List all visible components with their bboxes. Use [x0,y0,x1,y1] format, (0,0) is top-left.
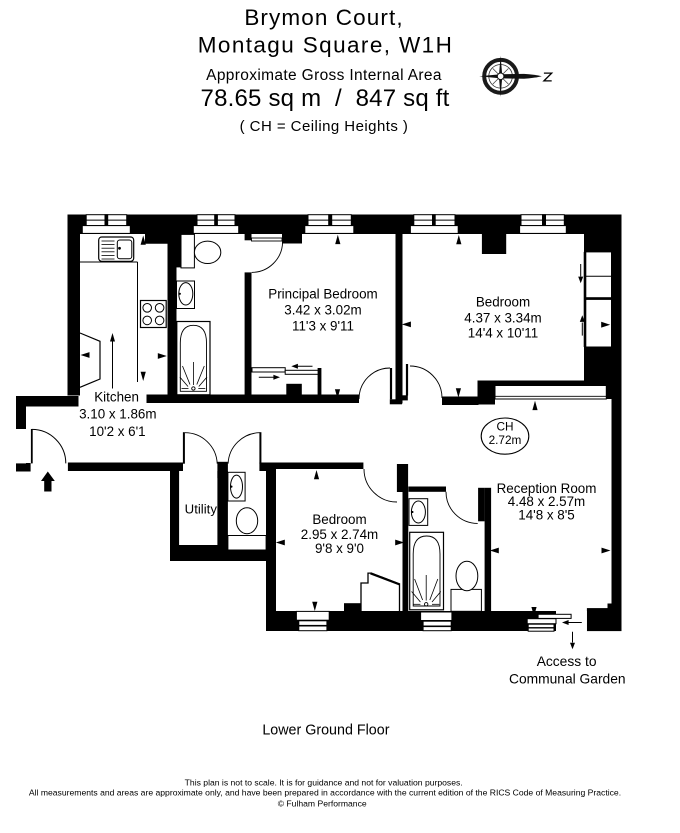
svg-text:CH: CH [496,420,513,434]
svg-text:Communal Garden: Communal Garden [509,671,626,686]
svg-text:14'8 x 8'5: 14'8 x 8'5 [518,508,575,523]
svg-text:This plan is not to scale. It: This plan is not to scale. It is for gui… [185,777,463,787]
svg-text:4.37 x 3.34m: 4.37 x 3.34m [464,311,541,326]
svg-text:10'2 x 6'1: 10'2 x 6'1 [89,424,146,439]
svg-text:( CH = Ceiling Heights ): ( CH = Ceiling Heights ) [240,118,409,135]
svg-text:Kitchen: Kitchen [94,389,139,404]
svg-text:3.42 x 3.02m: 3.42 x 3.02m [284,303,361,318]
svg-text:14'4 x 10'11: 14'4 x 10'11 [468,326,538,341]
svg-text:Brymon Court,: Brymon Court, [244,5,403,30]
svg-text:9'8 x 9'0: 9'8 x 9'0 [315,541,364,556]
svg-text:© Fulham Performance: © Fulham Performance [278,798,367,808]
svg-text:Principal Bedroom: Principal Bedroom [268,287,377,302]
svg-text:Utility: Utility [185,502,218,517]
svg-text:3.10 x 1.86m: 3.10 x 1.86m [79,406,156,421]
svg-text:Access to: Access to [537,654,597,669]
svg-text:Montagu Square, W1H: Montagu Square, W1H [198,33,453,58]
svg-text:78.65 sq m / 847 sq ft: 78.65 sq m / 847 sq ft [201,85,450,112]
svg-text:Lower Ground Floor: Lower Ground Floor [262,723,389,739]
svg-text:Approximate Gross Internal Are: Approximate Gross Internal Area [206,67,442,84]
svg-text:11'3 x 9'11: 11'3 x 9'11 [292,318,354,333]
svg-text:2.72m: 2.72m [489,433,522,447]
svg-text:Bedroom: Bedroom [476,295,530,310]
svg-text:All measurements and areas are: All measurements and areas are approxima… [29,788,621,798]
svg-text:2.95 x 2.74m: 2.95 x 2.74m [301,527,378,542]
svg-text:Bedroom: Bedroom [312,512,366,527]
